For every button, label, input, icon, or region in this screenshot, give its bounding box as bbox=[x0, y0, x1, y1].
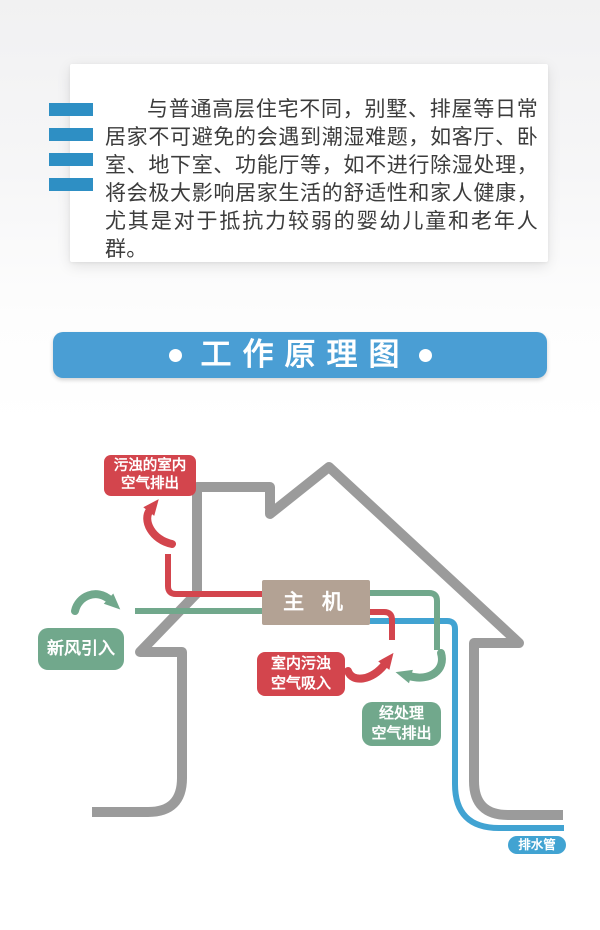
label-line: 空气排出 bbox=[104, 475, 196, 493]
accent-bar bbox=[49, 128, 93, 141]
intro-card: 与普通高层住宅不同，别墅、排屋等日常居家不可避免的会遇到潮湿难题，如客厅、卧室、… bbox=[70, 64, 548, 262]
accent-bar bbox=[49, 153, 93, 166]
accent-bar bbox=[49, 178, 93, 191]
exhaust-air-line bbox=[168, 554, 264, 594]
label-line: 空气吸入 bbox=[257, 674, 345, 694]
label-fresh-air-in: 新风引入 bbox=[38, 628, 124, 670]
fresh-in-arrow-icon bbox=[75, 594, 110, 611]
accent-bars bbox=[49, 103, 93, 203]
banner-title: 工作原理图 bbox=[201, 332, 411, 378]
treated-out-arrow-icon bbox=[409, 653, 442, 678]
label-line: 污浊的室内 bbox=[104, 457, 196, 475]
label-dirty-air-out: 污浊的室内 空气排出 bbox=[104, 455, 196, 496]
label-drain-pipe: 排水管 bbox=[508, 836, 566, 854]
house-outline bbox=[92, 467, 563, 815]
label-line: 排水管 bbox=[508, 836, 566, 854]
accent-bar bbox=[49, 103, 93, 116]
label-line: 空气排出 bbox=[362, 724, 441, 744]
label-line: 经处理 bbox=[362, 704, 441, 724]
dot-icon bbox=[169, 349, 182, 362]
exhaust-up-arrow-icon bbox=[147, 510, 172, 544]
label-dirty-air-in: 室内污浊 空气吸入 bbox=[257, 652, 345, 696]
label-line: 新风引入 bbox=[38, 628, 124, 670]
page: 与普通高层住宅不同，别墅、排屋等日常居家不可避免的会遇到潮湿难题，如客厅、卧室、… bbox=[0, 0, 600, 930]
return-in-arrow-icon bbox=[348, 664, 385, 679]
dot-icon bbox=[419, 349, 432, 362]
return-air-line bbox=[368, 612, 392, 640]
intro-paragraph: 与普通高层住宅不同，别墅、排屋等日常居家不可避免的会遇到潮湿难题，如客厅、卧室、… bbox=[70, 64, 548, 264]
label-line: 室内污浊 bbox=[257, 654, 345, 674]
label-treated-air-out: 经处理 空气排出 bbox=[362, 702, 441, 746]
section-banner: 工作原理图 bbox=[53, 332, 547, 378]
main-unit-box: 主 机 bbox=[262, 580, 370, 625]
principle-diagram: 主 机 污浊的室内 空气排出 新风引入 室内污浊 空气吸入 经处理 空气排出 排… bbox=[0, 440, 600, 930]
